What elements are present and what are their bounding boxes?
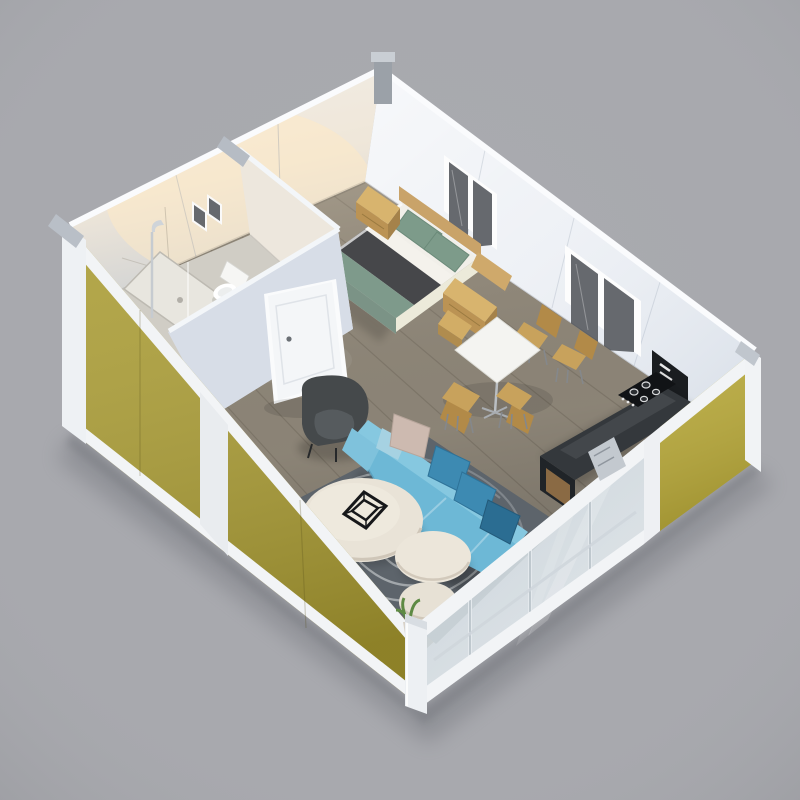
door-handle (286, 336, 291, 341)
isometric-house-render (0, 0, 800, 800)
shower-drain (177, 297, 183, 303)
corner-post-south (405, 614, 427, 714)
panel-separator (644, 427, 660, 544)
render-canvas: 3D isometric cutaway render of an expand… (0, 0, 800, 800)
coffee-table-medium (395, 531, 471, 583)
corner-post-north (374, 58, 392, 104)
corner-post-north-cap (371, 52, 395, 62)
post-body (405, 614, 427, 714)
armchair-seat (314, 409, 354, 439)
corner-post-west (62, 222, 86, 444)
